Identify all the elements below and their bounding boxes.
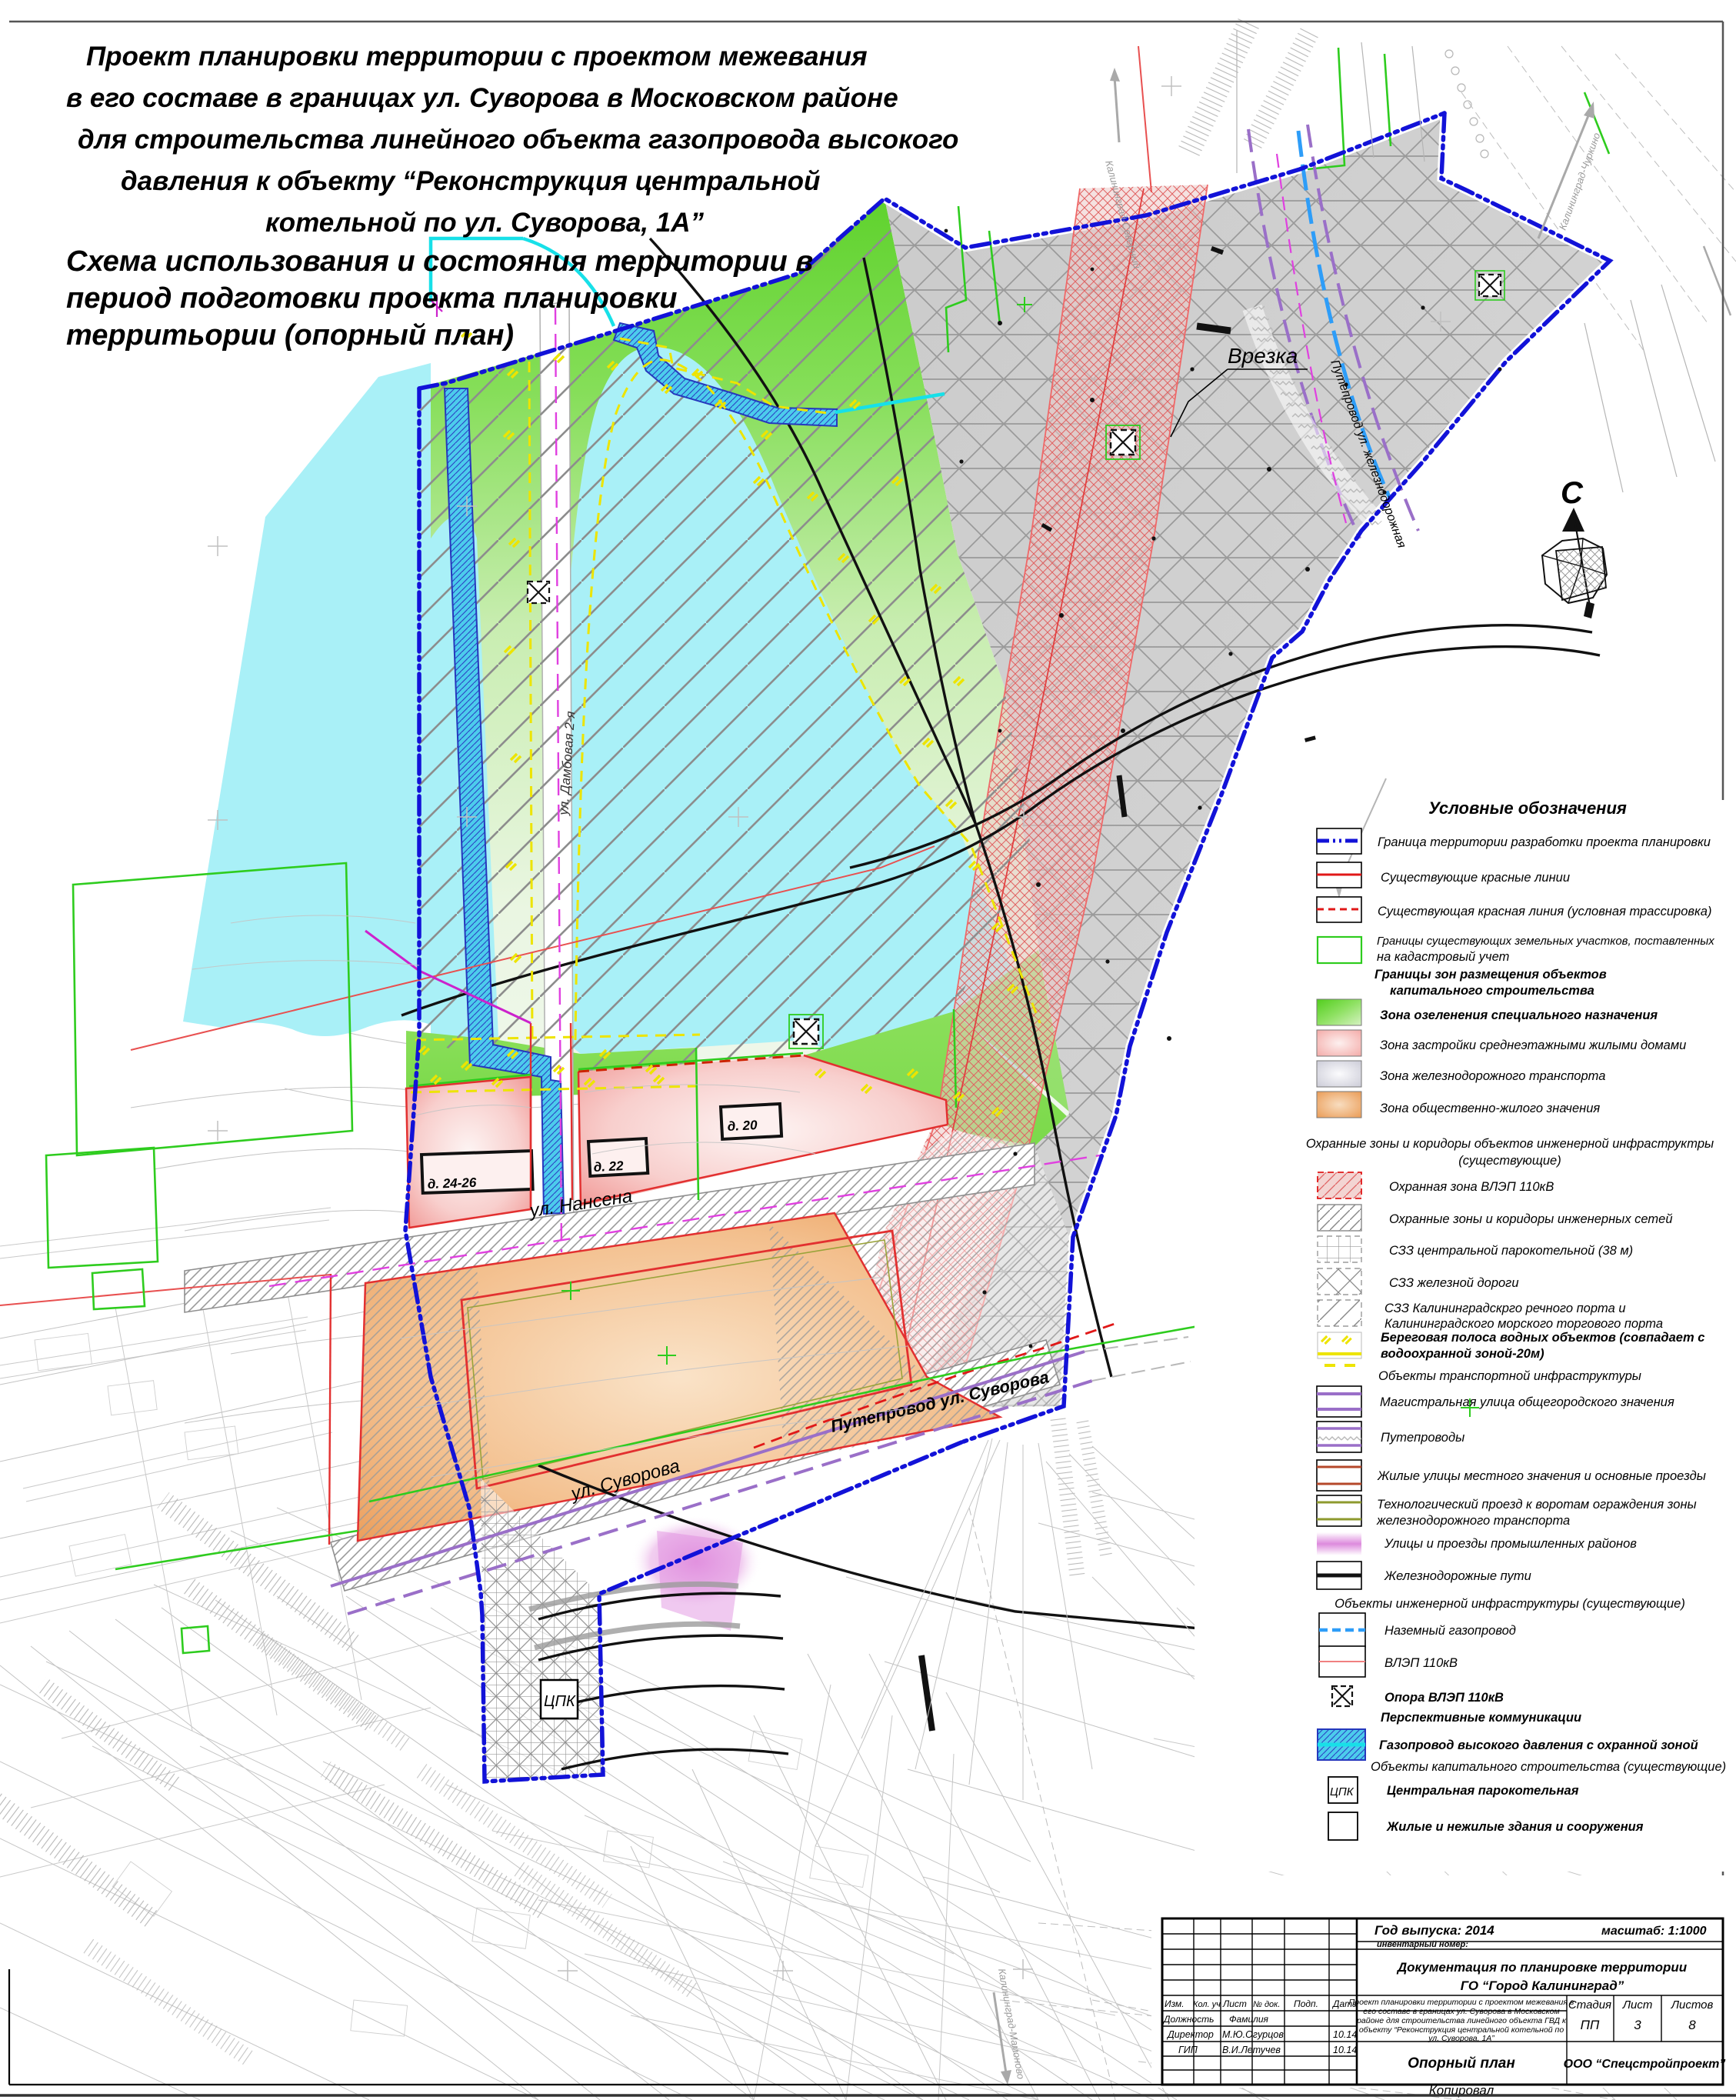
svg-text:Наземный газопровод: Наземный газопровод xyxy=(1384,1624,1516,1638)
svg-text:Фамилия: Фамилия xyxy=(1229,2014,1269,2025)
svg-text:Изм.: Изм. xyxy=(1165,1998,1185,2009)
svg-text:котельной по ул. Суворова, 1А”: котельной по ул. Суворова, 1А” xyxy=(265,208,704,238)
svg-text:Лист: Лист xyxy=(1622,1998,1653,2012)
svg-text:Охранные зоны и коридоры объек: Охранные зоны и коридоры объектов инжене… xyxy=(1306,1137,1714,1151)
svg-text:Проект планировки территории с: Проект планировки территории с проектом … xyxy=(86,42,868,72)
svg-text:на кадастровый учет: на кадастровый учет xyxy=(1377,950,1509,964)
svg-text:водоохранной зоной-20м): водоохранной зоной-20м) xyxy=(1381,1347,1544,1361)
svg-text:для строительства линейного об: для строительства линейного объекта газо… xyxy=(78,125,958,155)
svg-text:в его составе в границах ул.: в его составе в границах ул. Суворова в … xyxy=(66,83,898,113)
svg-text:В.И.Летучев: В.И.Летучев xyxy=(1222,2045,1281,2055)
svg-text:ул. Суворова, 1А”: ул. Суворова, 1А” xyxy=(1428,2034,1494,2043)
svg-text:инвентарный номер:: инвентарный номер: xyxy=(1377,1940,1468,1949)
svg-text:СЗЗ железной дороги: СЗЗ железной дороги xyxy=(1389,1276,1519,1290)
svg-text:районе для строительства линей: районе для строительства линейного объек… xyxy=(1356,2016,1567,2025)
svg-text:д. 24-26: д. 24-26 xyxy=(427,1175,477,1192)
svg-text:Опора ВЛЭП 110кВ: Опора ВЛЭП 110кВ xyxy=(1384,1691,1504,1705)
svg-text:СЗЗ центральной парокотельной: СЗЗ центральной парокотельной (38 м) xyxy=(1389,1244,1633,1258)
svg-text:Охранные зоны и коридоры инжен: Охранные зоны и коридоры инженерных сете… xyxy=(1389,1212,1673,1226)
svg-text:Зона железнодорожного транспор: Зона железнодорожного транспорта xyxy=(1380,1069,1605,1083)
svg-text:Должность: Должность xyxy=(1162,2014,1214,2025)
svg-text:№ док.: № док. xyxy=(1253,2000,1280,2009)
svg-text:Технологический проезд к ворот: Технологический проезд к воротам огражде… xyxy=(1377,1498,1697,1512)
svg-text:Зона озеленения специального н: Зона озеленения специального назначения xyxy=(1380,1008,1658,1022)
svg-text:Зона общественно-жилого значен: Зона общественно-жилого значения xyxy=(1380,1102,1600,1115)
svg-text:Лист: Лист xyxy=(1222,1998,1247,2009)
svg-text:Существующие красные линии: Существующие красные линии xyxy=(1381,871,1570,885)
svg-text:Граница территории разработки: Граница территории разработки проекта пл… xyxy=(1378,835,1711,849)
svg-text:Проект планировки территории с: Проект планировки территории с проектом … xyxy=(1349,1998,1574,2007)
svg-text:С: С xyxy=(1561,476,1584,510)
svg-text:Границы существующих земельных: Границы существующих земельных участков,… xyxy=(1377,935,1714,948)
svg-text:Год выпуска: 2014: Год выпуска: 2014 xyxy=(1374,1923,1494,1938)
svg-text:М.Ю.Огурцов: М.Ю.Огурцов xyxy=(1222,2029,1284,2040)
svg-text:Директор: Директор xyxy=(1166,2029,1214,2040)
svg-text:д. 22: д. 22 xyxy=(593,1158,624,1175)
svg-text:ПП: ПП xyxy=(1581,2018,1600,2032)
svg-text:Газопровод высокого давления с: Газопровод высокого давления с охранной … xyxy=(1379,1738,1698,1752)
svg-text:ООО “Спецстройпроект”: ООО “Спецстройпроект” xyxy=(1564,2058,1726,2071)
svg-text:Береговая полоса водных объект: Береговая полоса водных объектов (совпад… xyxy=(1381,1331,1704,1345)
svg-text:ВЛЭП 110кВ: ВЛЭП 110кВ xyxy=(1384,1656,1458,1670)
svg-text:Листов: Листов xyxy=(1671,1998,1714,2012)
svg-text:Условные обозначения: Условные обозначения xyxy=(1428,798,1627,818)
svg-text:Кол. уч: Кол. уч xyxy=(1193,2000,1221,2009)
svg-text:Схема использования и состояни: Схема использования и состояния территор… xyxy=(66,245,813,278)
svg-text:Магистральная улица общегородс: Магистральная улица общегородского значе… xyxy=(1380,1395,1674,1409)
svg-text:железнодорожного транспорта: железнодорожного транспорта xyxy=(1376,1514,1570,1528)
svg-text:капитального строительства: капитального строительства xyxy=(1390,984,1594,998)
svg-text:период подготовки проекта план: период подготовки проекта планировки xyxy=(66,282,677,315)
svg-text:масштаб: 1:1000: масштаб: 1:1000 xyxy=(1601,1925,1707,1938)
svg-text:Перспективные коммуникации: Перспективные коммуникации xyxy=(1381,1711,1581,1725)
svg-text:давления к объекту “Реконструк: давления к объекту “Реконструкция центра… xyxy=(121,166,820,196)
svg-text:3: 3 xyxy=(1634,2018,1641,2032)
svg-text:Путепроводы: Путепроводы xyxy=(1381,1431,1464,1445)
svg-text:СЗЗ Калининградскрго речного п: СЗЗ Калининградскрго речного порта и xyxy=(1384,1302,1626,1315)
svg-text:Жилые улицы местного значения: Жилые улицы местного значения и основные… xyxy=(1377,1469,1706,1483)
svg-text:Улицы и проезды промышленных р: Улицы и проезды промышленных районов xyxy=(1384,1537,1637,1551)
svg-text:Объекты транспортной инфрастру: Объекты транспортной инфраструктуры xyxy=(1378,1369,1641,1383)
svg-text:Центральная парокотельная: Центральная парокотельная xyxy=(1387,1784,1579,1798)
svg-text:Железнодорожные пути: Железнодорожные пути xyxy=(1384,1569,1531,1583)
svg-text:Границы зон размещения объекто: Границы зон размещения объектов xyxy=(1374,968,1607,982)
svg-text:ГИП: ГИП xyxy=(1178,2045,1198,2055)
svg-text:Подп.: Подп. xyxy=(1294,1998,1318,2009)
svg-text:Жилые и нежилые здания и соору: Жилые и нежилые здания и сооружения xyxy=(1386,1820,1644,1834)
svg-text:8: 8 xyxy=(1688,2018,1696,2032)
svg-text:10.14: 10.14 xyxy=(1333,2045,1357,2055)
svg-text:территьории (опорный план): территьории (опорный план) xyxy=(66,319,514,352)
svg-text:ЦПК: ЦПК xyxy=(544,1693,576,1710)
svg-text:(существующие): (существующие) xyxy=(1458,1154,1561,1168)
svg-text:ГО “Город Калининград”: ГО “Город Калининград” xyxy=(1461,1978,1624,1993)
svg-text:10.14: 10.14 xyxy=(1333,2029,1357,2040)
svg-text:д. 20: д. 20 xyxy=(727,1118,758,1134)
svg-text:Объекты капитального строитель: Объекты капитального строительства (суще… xyxy=(1371,1760,1726,1774)
svg-text:его составе в границах ул. Су: его составе в границах ул. Суворова в Мо… xyxy=(1363,2007,1559,2016)
svg-text:Охранная зона ВЛЭП 110кВ: Охранная зона ВЛЭП 110кВ xyxy=(1389,1180,1554,1194)
svg-text:Врезка: Врезка xyxy=(1228,344,1298,368)
svg-text:Документация по планировке тер: Документация по планировке территории xyxy=(1396,1960,1688,1975)
svg-text:Объекты инженерной инфраструкт: Объекты инженерной инфраструктуры (сущес… xyxy=(1334,1597,1685,1611)
svg-text:Существующая красная линия (ус: Существующая красная линия (условная тра… xyxy=(1378,905,1711,918)
svg-text:Калининградского морского торг: Калининградского морского торгового порт… xyxy=(1384,1317,1663,1331)
svg-text:Опорный план: Опорный план xyxy=(1408,2055,1515,2072)
svg-text:Зона застройки среднеэтажными: Зона застройки среднеэтажными жилыми дом… xyxy=(1380,1038,1686,1052)
svg-text:Стадия: Стадия xyxy=(1568,1998,1611,2012)
svg-text:ЦПК: ЦПК xyxy=(1330,1785,1354,1798)
